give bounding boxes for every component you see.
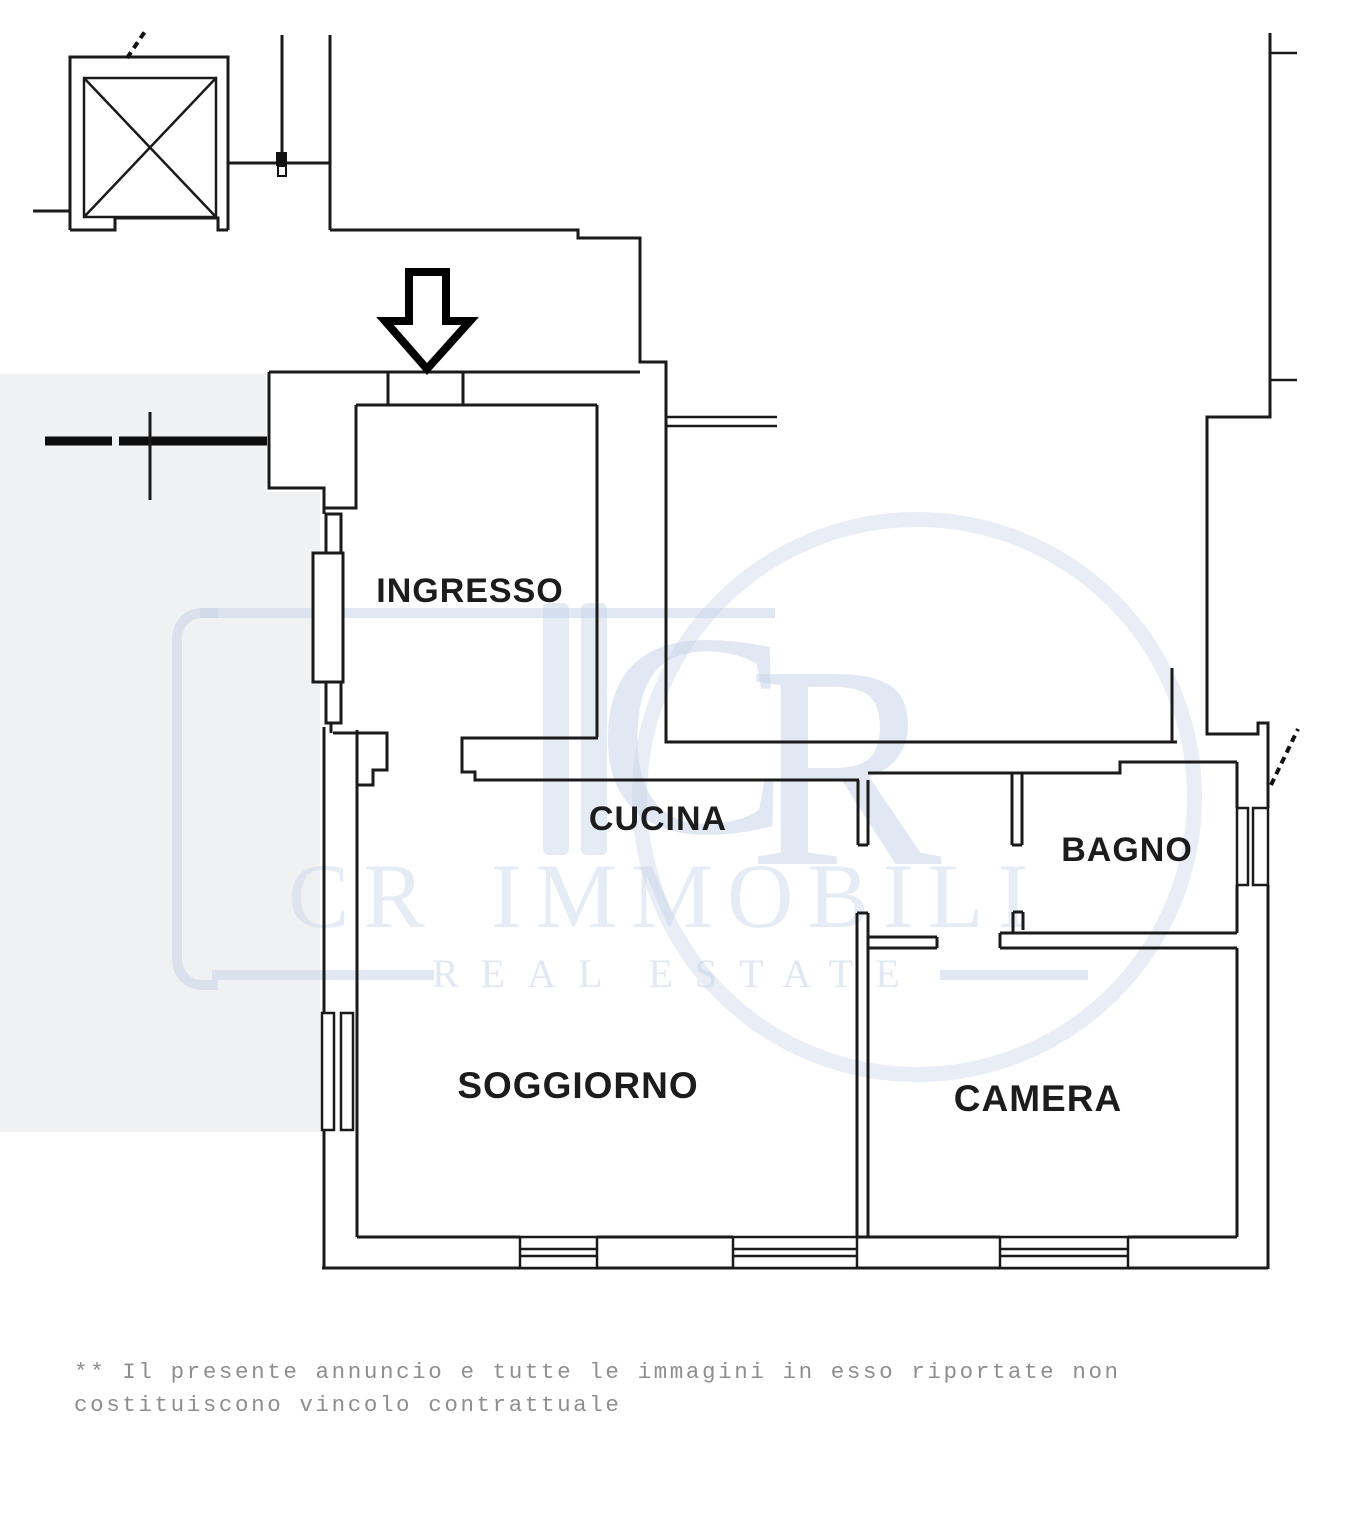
break-line-icon — [127, 30, 146, 58]
ingresso-walls — [269, 372, 859, 785]
wall-tick — [276, 152, 287, 166]
window-symbol — [733, 1237, 857, 1268]
disclaimer: ** Il presente annuncio e tutte le immag… — [74, 1356, 1121, 1422]
entry-door-jambs — [313, 514, 343, 723]
room-label-soggiorno: SOGGIORNO — [457, 1065, 698, 1106]
window-symbol — [520, 1237, 597, 1268]
elevator-icon — [70, 57, 228, 230]
stairwell-walls — [33, 30, 330, 500]
parapet-double-line — [666, 417, 777, 426]
room-label-bagno: BAGNO — [1061, 831, 1193, 869]
wall-tick — [278, 166, 286, 176]
room-label-camera: CAMERA — [954, 1078, 1122, 1119]
window-symbol — [322, 1013, 353, 1130]
floor-plan-drawing: INGRESSO CUCINA BAGNO SOGGIORNO CAMERA — [0, 0, 1355, 1536]
window-symbol — [1237, 808, 1268, 885]
window-symbol — [1000, 1237, 1128, 1268]
disclaimer-line-2: costituiscono vincolo contrattuale — [74, 1389, 1121, 1422]
room-label-ingresso: INGRESSO — [376, 572, 563, 610]
entrance-arrow-icon — [385, 272, 470, 369]
disclaimer-line-1: ** Il presente annuncio e tutte le immag… — [74, 1356, 1121, 1389]
lower-perimeter-walls — [322, 727, 1268, 1268]
floor-plan-page: C R CRIMMOBILI REALESTATE — [0, 0, 1355, 1536]
room-label-cucina: CUCINA — [589, 800, 727, 838]
break-line-icon — [1271, 729, 1298, 785]
